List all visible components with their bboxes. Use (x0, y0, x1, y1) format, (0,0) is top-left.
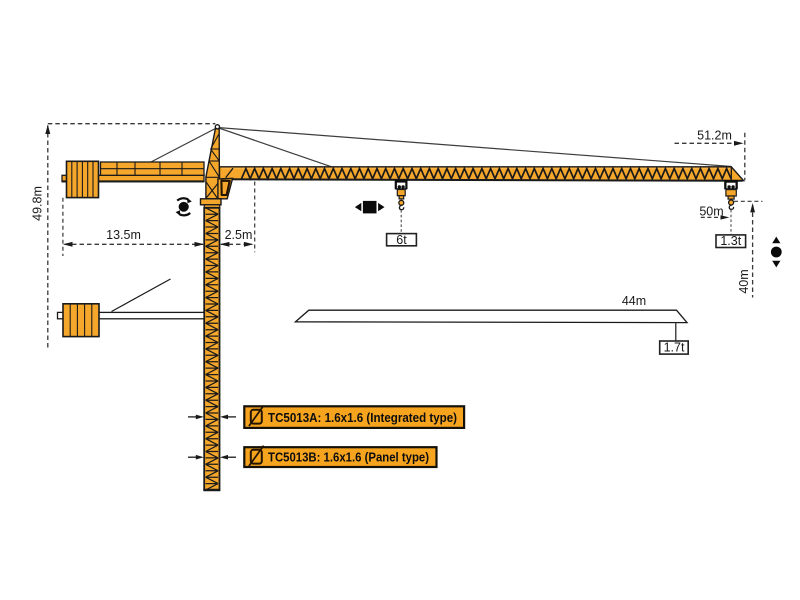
svg-text:6t: 6t (396, 233, 407, 247)
svg-text:49.8m: 49.8m (31, 186, 45, 221)
svg-text:40m: 40m (737, 269, 751, 293)
svg-text:13.5m: 13.5m (106, 228, 141, 242)
svg-text:44m: 44m (622, 294, 646, 308)
svg-text:51.2m: 51.2m (697, 129, 732, 143)
svg-text:TC5013A: 1.6x1.6 (Integrated: TC5013A: 1.6x1.6 (Integrated type) (268, 410, 457, 425)
svg-text:1.3t: 1.3t (720, 234, 741, 248)
svg-text:1.7t: 1.7t (664, 341, 685, 355)
svg-text:2.5m: 2.5m (225, 228, 253, 242)
svg-text:50m: 50m (699, 204, 723, 218)
svg-text:TC5013B: 1.6x1.6 (Panel type: TC5013B: 1.6x1.6 (Panel type) (268, 449, 429, 464)
